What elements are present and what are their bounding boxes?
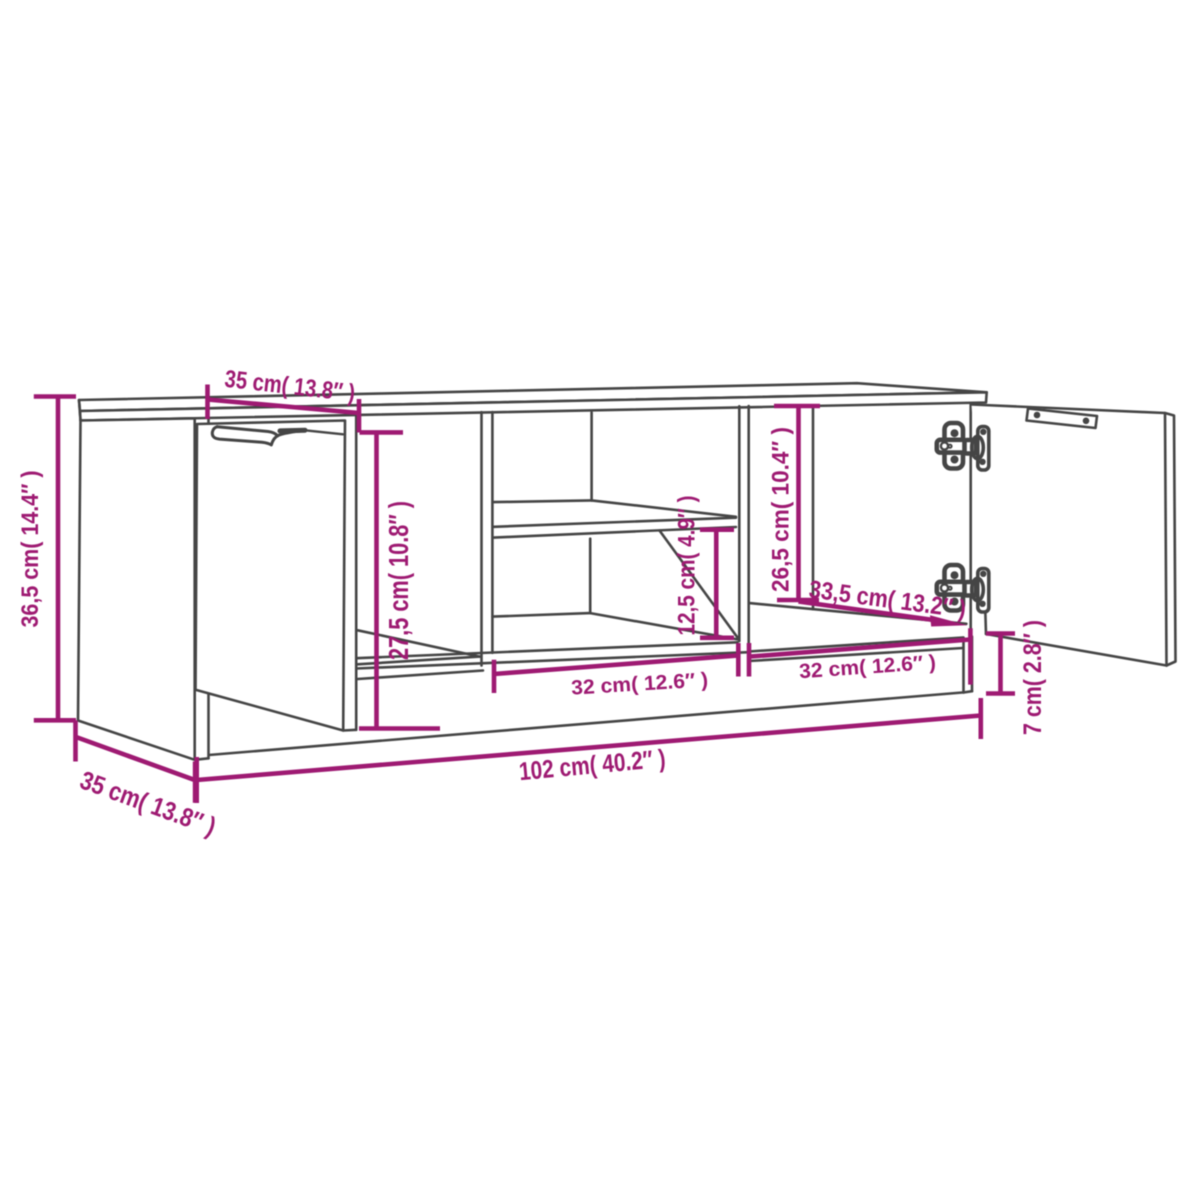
svg-text:12,5 cm( 4.9″ ): 12,5 cm( 4.9″ )	[674, 496, 701, 636]
svg-text:27,5 cm( 10.8″ ): 27,5 cm( 10.8″ )	[383, 501, 414, 660]
svg-text:36,5 cm( 14.4″ ): 36,5 cm( 14.4″ )	[17, 471, 44, 628]
svg-text:7 cm( 2.8″ ): 7 cm( 2.8″ )	[1019, 620, 1047, 735]
svg-text:26,5 cm( 10.4″ ): 26,5 cm( 10.4″ )	[768, 427, 795, 592]
